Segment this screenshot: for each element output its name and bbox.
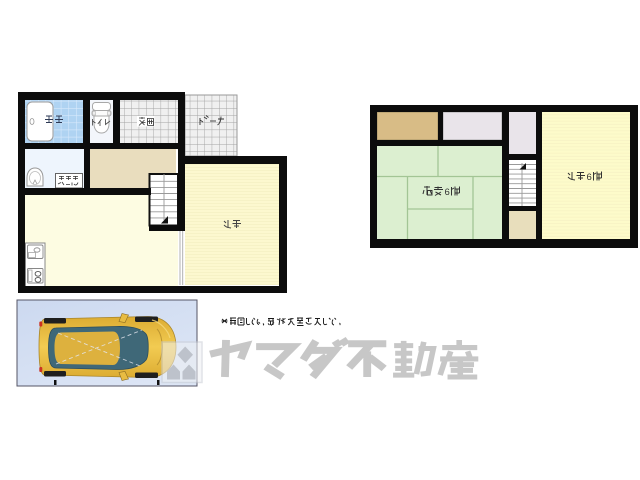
svg-text:6: 6 bbox=[587, 172, 592, 183]
svg-text:6: 6 bbox=[445, 187, 450, 198]
